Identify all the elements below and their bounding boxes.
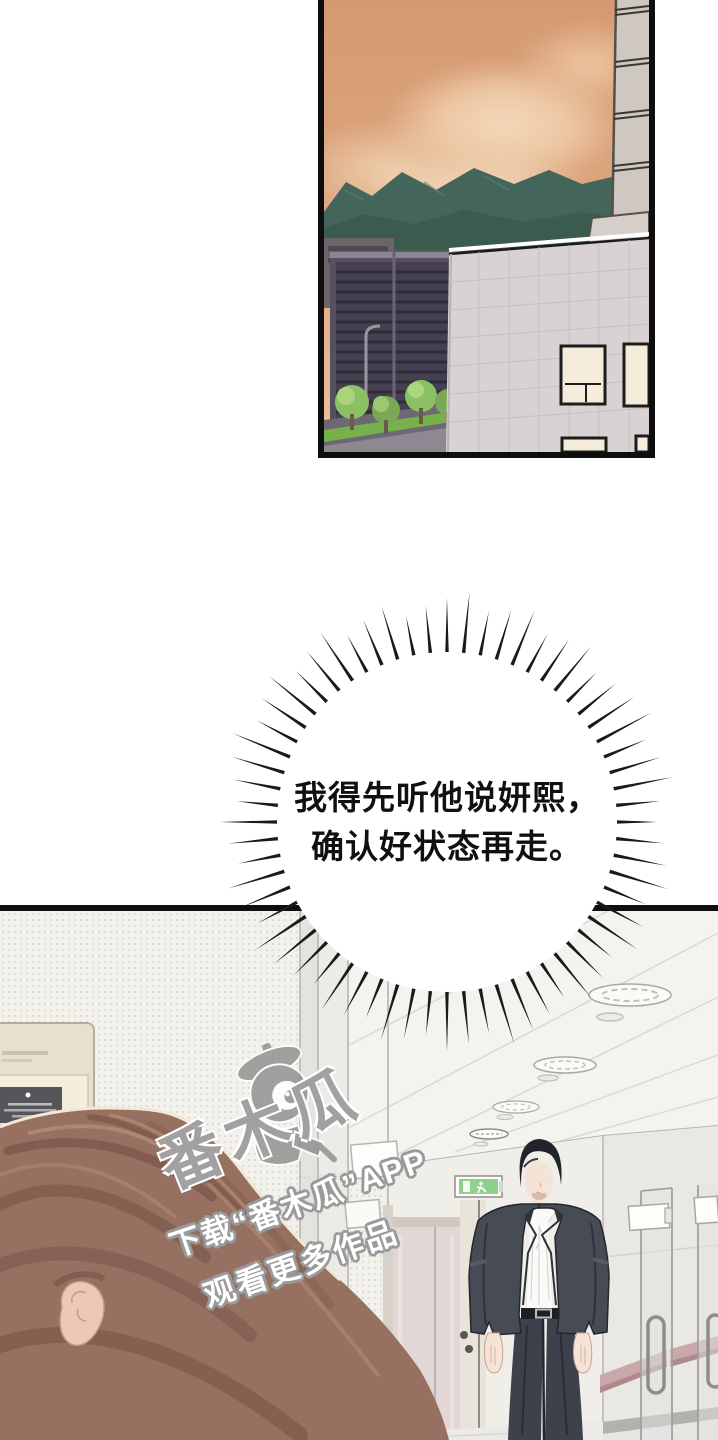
thought-burst-bubble: 我得先听他说妍熙， 确认好状态再走。 bbox=[207, 582, 687, 1062]
thought-text-line-2: 确认好状态再走。 bbox=[311, 826, 583, 867]
thought-text-line-1: 我得先听他说妍熙， bbox=[294, 777, 600, 818]
door-sign bbox=[628, 1204, 670, 1231]
glass-door bbox=[694, 1183, 718, 1440]
comic-page: 我得先听他说妍熙， 确认好状态再走。 番木瓜 下载“番木瓜”APP 观看更多作品 bbox=[0, 0, 718, 1440]
hospital-building bbox=[446, 234, 649, 452]
door-sign bbox=[694, 1196, 718, 1224]
wall-sign bbox=[345, 1200, 381, 1229]
panel-cityscape bbox=[318, 0, 655, 458]
exit-door-glyph bbox=[463, 1181, 470, 1192]
thought-text: 我得先听他说妍熙， 确认好状态再走。 bbox=[207, 582, 687, 1062]
exit-sign bbox=[455, 1176, 503, 1197]
cityscape-drawing bbox=[324, 0, 649, 452]
wall-sign bbox=[351, 1141, 400, 1179]
